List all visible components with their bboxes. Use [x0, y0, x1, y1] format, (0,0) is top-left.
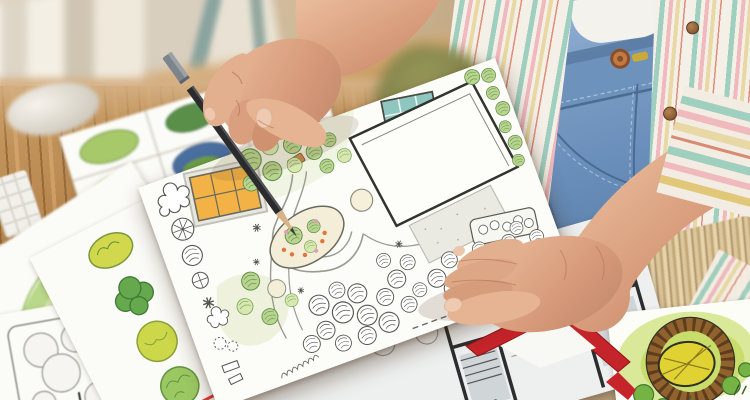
- shirt-button-top: [686, 21, 699, 34]
- shirt-button-lower: [663, 106, 677, 120]
- photo-landscape-designer: [0, 0, 750, 400]
